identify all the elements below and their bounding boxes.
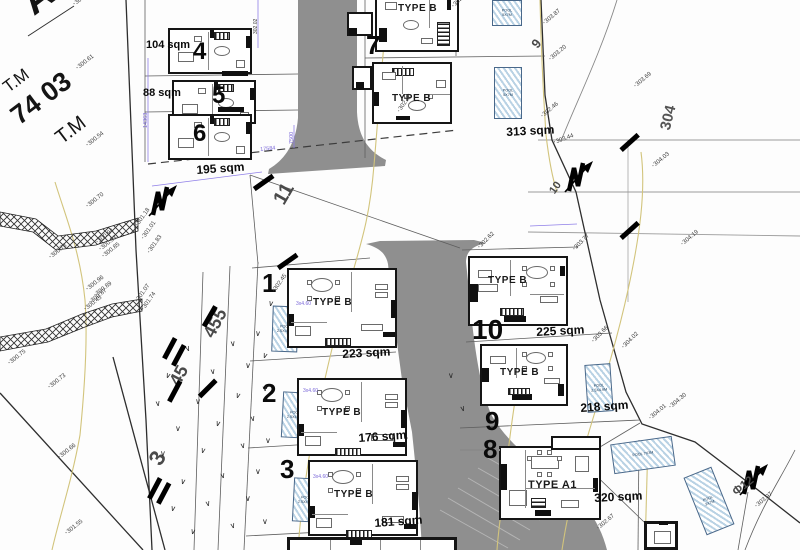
floor-plan-detail [537, 450, 542, 455]
floor-plan-detail [526, 266, 548, 279]
type-label-plot-3: TYPE B [334, 490, 373, 500]
floor-plan-detail [504, 316, 526, 322]
floor-plan-detail [312, 514, 348, 515]
floor-plan-detail [396, 484, 409, 490]
plot-number-7: 7 [366, 32, 380, 58]
floor-plan-detail [214, 118, 230, 126]
vegetation-mark: ∨ [448, 372, 454, 380]
floor-plan-detail [548, 352, 553, 357]
floor-plan-detail [522, 266, 527, 271]
floor-plan-detail [526, 352, 546, 364]
floor-plan-detail [214, 132, 230, 142]
floor-plan-detail [403, 20, 419, 30]
type-label-plot-9: TYPE B [500, 368, 539, 378]
area-label-plot-8: 320 sqm [594, 489, 643, 503]
floor-plan-detail [548, 366, 553, 371]
floor-plan-detail [535, 510, 551, 516]
floor-plan-detail [311, 278, 333, 292]
floor-plan-detail [490, 356, 506, 364]
area-label-plot-9: 218 sqm [580, 399, 629, 414]
site-plan-canvas: POOL 5X7M POOL 5X7M POOL 2.5X4.9M POOL 2… [0, 0, 800, 550]
house-plan-plot-1 [287, 268, 397, 348]
floor-plan-detail [540, 296, 558, 303]
floor-plan-detail [361, 324, 383, 331]
floor-plan-detail [178, 138, 194, 148]
floor-plan-detail [321, 388, 343, 402]
floor-plan-detail [383, 332, 395, 337]
floor-plan-detail [544, 378, 560, 384]
floor-plan-detail [508, 388, 530, 395]
dimension-label: 302.02 [254, 19, 259, 34]
vegetation-mark: ∨ [230, 340, 237, 349]
dimension-label: 3x4.60 [313, 475, 328, 480]
floor-plan-detail [375, 292, 388, 298]
floor-plan-detail [356, 472, 361, 477]
type-label-upper: TYPE B [398, 4, 437, 14]
floor-plan-detail [437, 22, 450, 46]
floor-plan-detail [305, 436, 321, 446]
floor-plan-detail [482, 368, 489, 382]
dimension-label: 3x4.60 [296, 302, 311, 307]
floor-plan-detail [375, 284, 388, 290]
floor-plan-detail [295, 326, 311, 336]
floor-plan-detail [361, 382, 362, 422]
vegetation-mark: ∨ [249, 415, 256, 424]
floor-plan-detail [537, 472, 542, 477]
floor-plan-detail [436, 80, 446, 88]
floor-plan-detail [328, 488, 333, 493]
plot-number-10: 10 [472, 316, 503, 344]
floor-plan-detail [550, 266, 555, 271]
floor-plan-detail [307, 280, 312, 285]
floor-plan-detail [310, 506, 315, 518]
dimension-label: 7500 [290, 132, 296, 144]
floor-plan-detail [332, 470, 354, 484]
floor-plan-detail [236, 60, 245, 68]
party-wall [222, 71, 248, 76]
vegetation-mark: ∨ [245, 362, 252, 370]
floor-plan-detail [402, 66, 403, 94]
vegetation-mark: ∨ [265, 437, 271, 445]
floor-plan-detail [246, 122, 251, 134]
plot-number-4: 4 [193, 40, 206, 64]
floor-plan-detail [531, 498, 546, 508]
floor-plan-detail [396, 116, 410, 120]
floor-plan-detail [391, 300, 397, 318]
floor-plan-detail [430, 94, 450, 95]
floor-plan-detail [412, 492, 418, 510]
floor-plan-detail [393, 442, 405, 447]
floor-plan-detail [421, 38, 433, 44]
area-label-plot-1: 223 sqm [342, 345, 391, 359]
vegetation-mark: ∨ [262, 518, 268, 526]
dimension-label: 14363 [144, 113, 150, 128]
floor-plan-detail [385, 394, 398, 400]
floor-plan-detail [335, 448, 361, 456]
house-plan-plot-4 [168, 28, 252, 74]
floor-plan-detail [575, 456, 589, 472]
house-plan-partial-bottom [287, 537, 457, 550]
vegetation-mark: ∨ [255, 468, 261, 476]
floor-plan-detail [182, 104, 198, 114]
house-wing [551, 436, 601, 450]
floor-plan-detail [557, 456, 562, 461]
floor-plan-detail [291, 322, 327, 323]
floor-plan-detail [558, 384, 564, 396]
floor-plan-detail [214, 32, 230, 40]
floor-plan-detail [208, 32, 209, 70]
area-label-plot-5: 88 sqm [143, 88, 181, 99]
floor-plan-detail [198, 88, 206, 94]
floor-plan-detail [385, 2, 397, 10]
floor-plan-detail [525, 450, 526, 508]
floor-plan-detail [470, 284, 478, 302]
floor-plan-detail [522, 352, 527, 357]
vegetation-mark: ∨ [175, 425, 181, 433]
area-label-plot-4: 104 sqm [146, 40, 190, 51]
area-label-plot-3: 181 sqm [374, 514, 423, 529]
type-label-plot-2: TYPE B [322, 408, 361, 418]
plot-number-5: 5 [212, 84, 225, 108]
floor-plan-detail [550, 282, 555, 287]
floor-plan-detail [345, 390, 350, 395]
vegetation-mark: ∨ [255, 330, 262, 339]
type-label-plot-8: TYPE A1 [528, 480, 577, 491]
vegetation-mark: ∨ [261, 385, 268, 394]
floor-plan-detail [214, 46, 230, 56]
floor-plan-detail [328, 472, 333, 477]
area-label-plot-2: 176 sqm [358, 429, 407, 444]
floor-plan-detail [527, 456, 532, 461]
vegetation-mark: ∨ [209, 368, 216, 377]
floor-plan-detail [547, 450, 552, 455]
plot-number-8: 8 [483, 436, 497, 462]
floor-plan-detail [335, 280, 340, 285]
floor-plan-detail [560, 266, 565, 276]
floor-plan-detail [246, 36, 251, 48]
floor-plan-detail [236, 146, 245, 154]
house-plan-plot-6 [168, 114, 252, 160]
plot-number-3: 3 [280, 456, 294, 482]
vegetation-mark: ∨ [154, 400, 161, 409]
floor-plan-detail [500, 308, 524, 316]
floor-plan-detail [561, 500, 579, 508]
floor-plan-detail [401, 410, 407, 428]
vegetation-mark: ∨ [160, 450, 166, 458]
area-label-plot-10: 225 sqm [536, 323, 585, 337]
north-arrow-icon [149, 185, 177, 216]
floor-plan-detail [396, 476, 409, 482]
plot-number-6: 6 [193, 122, 206, 146]
area-label-plot-7: 313 sqm [506, 123, 555, 137]
floor-plan-detail [325, 338, 351, 346]
dimension-label: 3x4.60 [303, 389, 318, 394]
floor-plan-detail [208, 118, 209, 156]
type-label-plot-1: TYPE B [313, 298, 352, 308]
type-label-plot-10: TYPE B [488, 276, 527, 286]
floor-plan-detail [374, 92, 379, 106]
floor-plan-detail [382, 72, 396, 80]
house-annex [352, 66, 372, 90]
floor-plan-detail [178, 52, 194, 62]
floor-plan-detail [250, 88, 255, 100]
pool-upper-plot: POOL 5X7M [492, 0, 522, 26]
floor-plan-detail [547, 472, 552, 477]
section-lines [528, 140, 800, 302]
vegetation-mark: ∨ [245, 495, 251, 503]
vegetation-mark: ∨ [195, 398, 201, 406]
area-label-plot-6: 195 sqm [196, 161, 245, 176]
floor-plan-detail [301, 432, 337, 433]
pool-plot-7: POOL 5X7M [494, 67, 522, 119]
floor-plan-detail [289, 314, 294, 326]
floor-plan-detail [501, 464, 507, 490]
plot-number-9: 9 [485, 408, 499, 434]
floor-plan-detail [530, 294, 564, 295]
floor-plan-detail [299, 424, 304, 436]
floor-plan-detail [316, 518, 332, 528]
structure-bottom-right [644, 521, 678, 550]
floor-plan-detail [385, 402, 398, 408]
floor-plan-detail [531, 456, 559, 469]
